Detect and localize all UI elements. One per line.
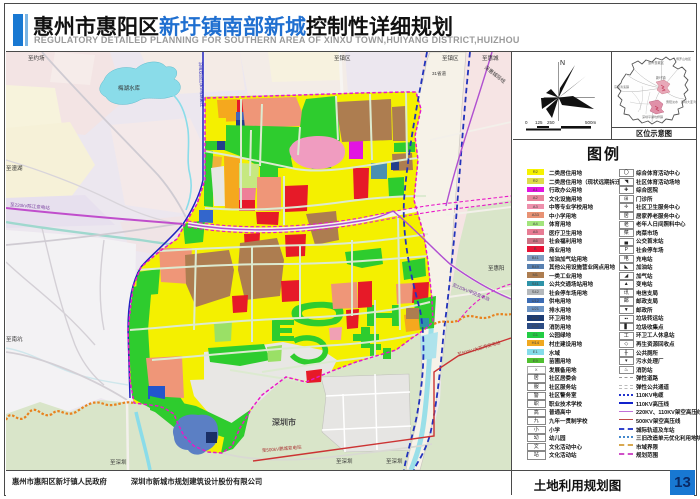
svg-text:至镇区: 至镇区 <box>442 54 459 62</box>
svg-text:至惠城: 至惠城 <box>482 54 499 62</box>
svg-text:至深圳: 至深圳 <box>110 458 127 466</box>
svg-text:至潼湖: 至潼湖 <box>6 164 23 172</box>
svg-text:至惠阳: 至惠阳 <box>488 264 505 272</box>
svg-text:至约场: 至约场 <box>28 54 45 62</box>
svg-text:深圳市: 深圳市 <box>272 417 296 427</box>
svg-text:至镇区: 至镇区 <box>334 54 351 62</box>
svg-text:31省道: 31省道 <box>432 70 447 77</box>
svg-text:至南坑: 至南坑 <box>6 335 23 343</box>
svg-text:至深圳: 至深圳 <box>386 457 403 465</box>
svg-text:梅湖水库: 梅湖水库 <box>118 84 141 92</box>
svg-text:至深圳: 至深圳 <box>336 457 353 465</box>
